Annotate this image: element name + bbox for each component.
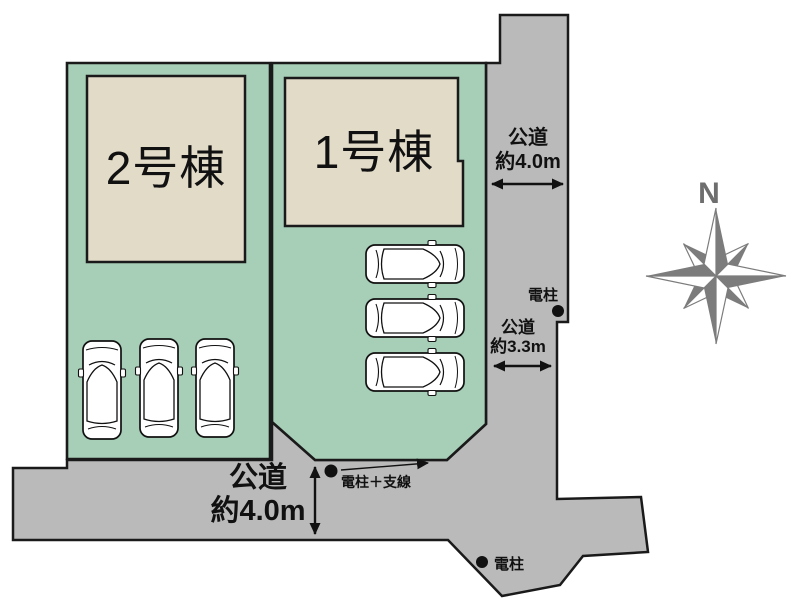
car-icon: [79, 341, 126, 439]
southeast-road-name: 公道: [468, 318, 568, 337]
east-pole-dot: [552, 305, 564, 317]
southeast-road-label: 公道 約3.3m: [468, 318, 568, 356]
south-road-label: 公道 約4.0m: [188, 462, 328, 528]
building-1-label: 1号棟: [285, 78, 463, 220]
car-icon: [366, 241, 464, 288]
corner-pole-label: 電柱＋支線: [341, 472, 411, 492]
south-pole-dot: [476, 556, 488, 568]
car-icon: [366, 349, 464, 396]
south-road-width: 約4.0m: [188, 495, 328, 528]
compass-north-label: N: [692, 177, 726, 211]
compass-rose-icon: [646, 208, 786, 344]
east-pole-label: 電柱: [528, 284, 558, 305]
south-road-name: 公道: [188, 462, 328, 495]
east-road-label: 公道 約4.0m: [478, 126, 578, 174]
car-icon: [366, 295, 464, 342]
south-pole-label: 電柱: [494, 553, 524, 574]
building-2-label: 2号棟: [87, 76, 245, 254]
southeast-road-width: 約3.3m: [468, 337, 568, 356]
site-plan: 2号棟 1号棟 公道 約4.0m 公道 約3.3m 公道 約4.0m 電柱 電柱…: [0, 0, 800, 600]
car-icon: [192, 339, 239, 437]
car-icon: [136, 339, 183, 437]
east-road-width: 約4.0m: [478, 150, 578, 174]
east-road-name: 公道: [478, 126, 578, 150]
